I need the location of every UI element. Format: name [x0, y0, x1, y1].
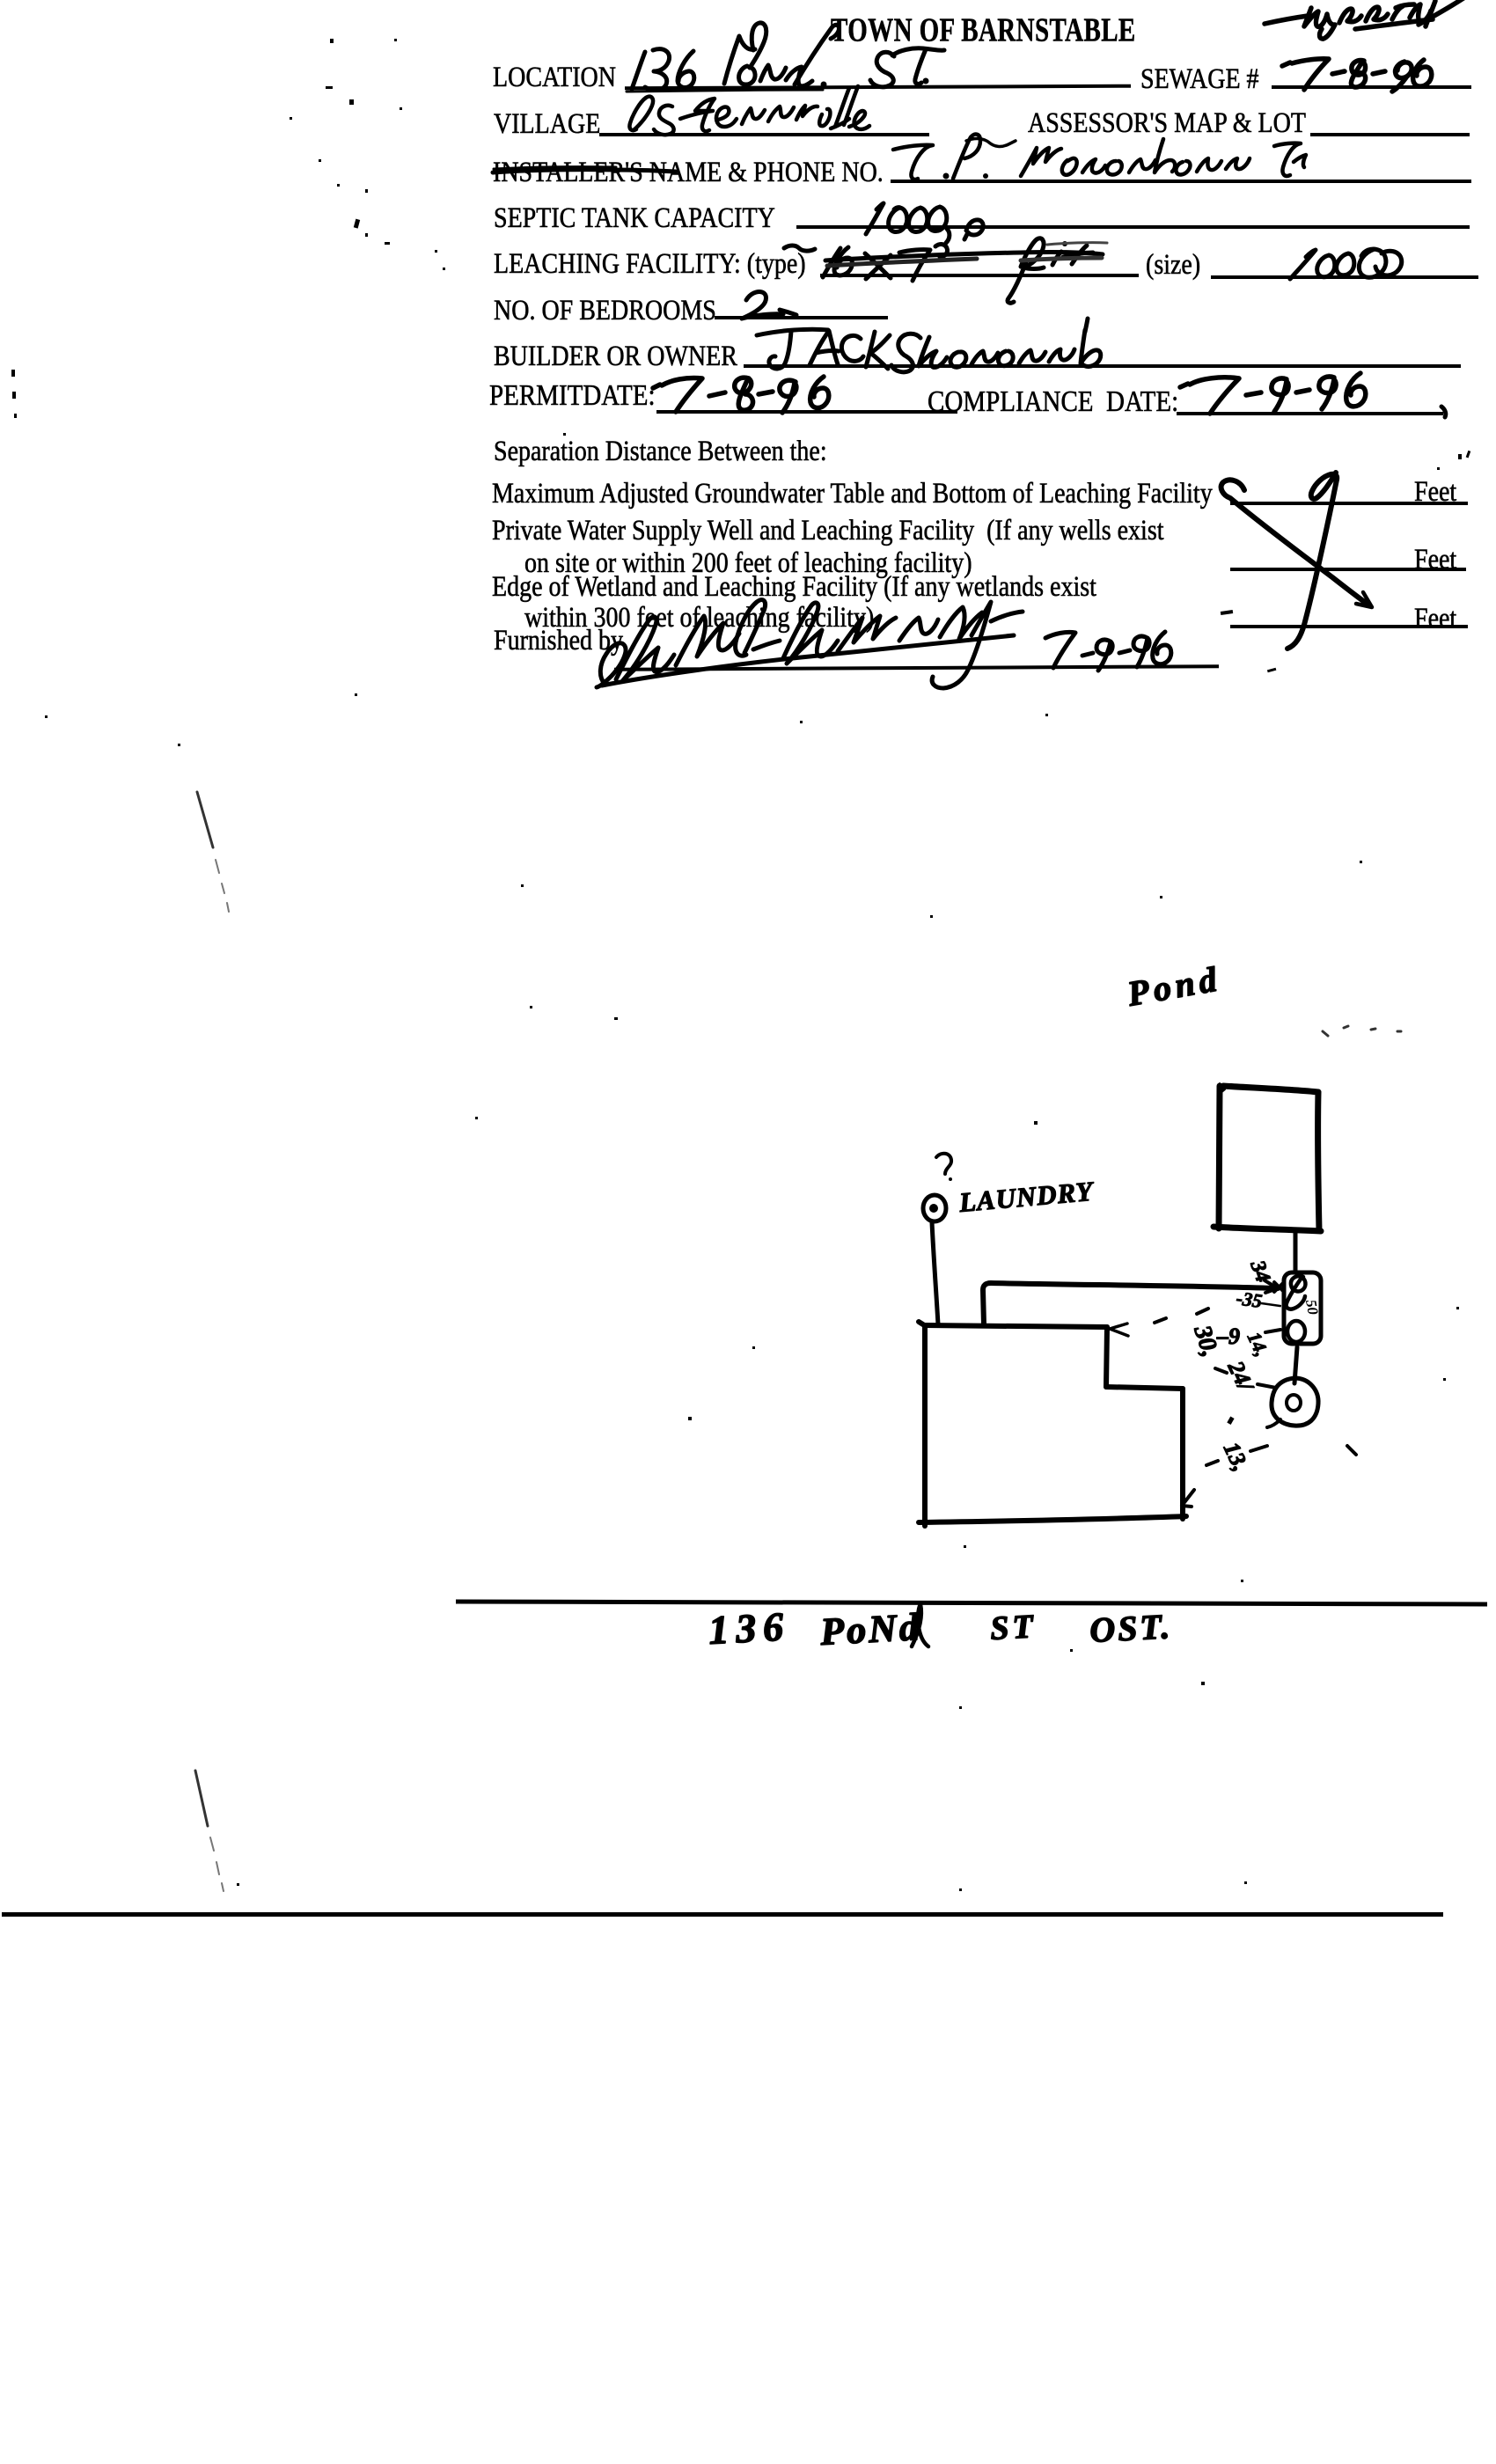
svg-text:13,: 13,	[1219, 1438, 1254, 1475]
svg-text:Pond: Pond	[1124, 958, 1224, 1014]
svg-text:LAUNDRY: LAUNDRY	[957, 1176, 1096, 1218]
svg-text:136: 136	[708, 1603, 792, 1653]
svg-text:OST.: OST.	[1089, 1606, 1173, 1650]
svg-text:–9: –9	[1216, 1324, 1240, 1349]
svg-text:24/: 24/	[1222, 1356, 1259, 1397]
svg-text:ST: ST	[989, 1608, 1037, 1647]
svg-text:34: 34	[1245, 1257, 1274, 1285]
svg-text:PoNd: PoNd	[818, 1605, 922, 1654]
